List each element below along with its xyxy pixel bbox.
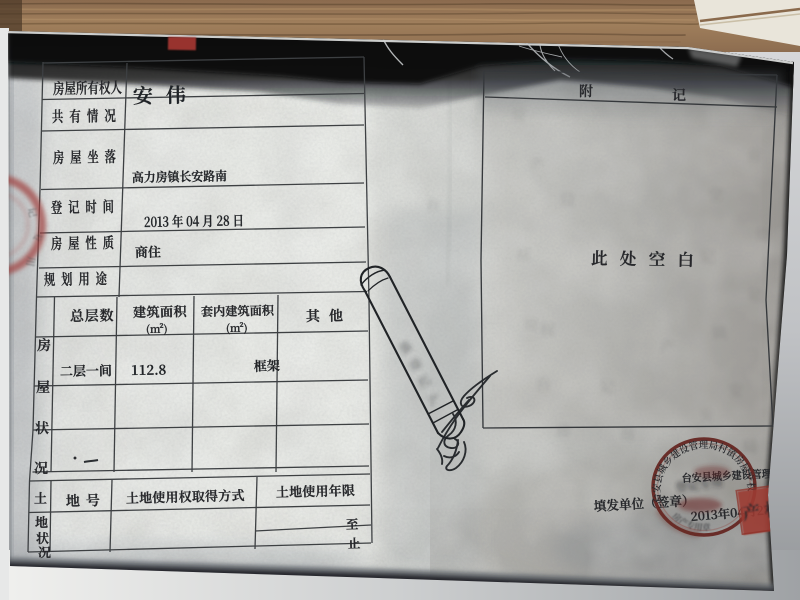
svg-text:况: 况: [34, 458, 48, 478]
svg-text:高力房镇长安路南: 高力房镇长安路南: [132, 165, 228, 186]
svg-text:规划用途: 规划用途: [44, 268, 113, 290]
svg-text:地号: 地号: [66, 490, 107, 511]
svg-text:总层数: 总层数: [70, 305, 115, 326]
svg-text:记: 记: [672, 85, 686, 105]
svg-text:土: 土: [34, 488, 47, 507]
svg-text:登记时间: 登记时间: [51, 196, 120, 218]
svg-text:况: 况: [38, 542, 51, 561]
svg-text:至: 至: [346, 515, 359, 533]
svg-text:土地使用年限: 土地使用年限: [276, 480, 356, 501]
svg-text:状: 状: [35, 418, 49, 438]
svg-text:安伟: 安伟: [133, 79, 199, 109]
svg-text:附: 附: [579, 81, 593, 101]
svg-text:房: 房: [37, 335, 51, 355]
svg-text:屋: 屋: [36, 377, 50, 397]
svg-text:套内建筑面积: 套内建筑面积: [201, 302, 274, 320]
svg-text:(m²): (m²): [146, 322, 168, 337]
svg-text:建筑面积: 建筑面积: [133, 301, 187, 321]
svg-text:台: 台: [426, 195, 440, 215]
svg-text:框架: 框架: [253, 355, 280, 375]
svg-text:专: 专: [31, 232, 46, 242]
svg-text:土地使用权取得方式: 土地使用权取得方式: [126, 485, 245, 507]
svg-text:共有情况: 共有情况: [52, 105, 122, 127]
svg-text:其他: 其他: [306, 305, 352, 326]
svg-text:(m²): (m²): [226, 321, 248, 336]
svg-text:局: 局: [742, 436, 757, 457]
svg-text:房屋所有权人: 房屋所有权人: [53, 77, 122, 99]
svg-text:2013 年 04 月 28 日: 2013 年 04 月 28 日: [144, 209, 244, 231]
svg-text:商住: 商住: [135, 242, 161, 261]
svg-text:112.8: 112.8: [131, 358, 167, 379]
svg-text:二层一间: 二层一间: [60, 360, 112, 380]
svg-text:房屋坐落: 房屋坐落: [53, 146, 122, 168]
svg-text:房屋性质: 房屋性质: [51, 232, 120, 254]
svg-text:此处空白: 此处空白: [591, 245, 707, 271]
svg-text:止: 止: [348, 534, 361, 552]
